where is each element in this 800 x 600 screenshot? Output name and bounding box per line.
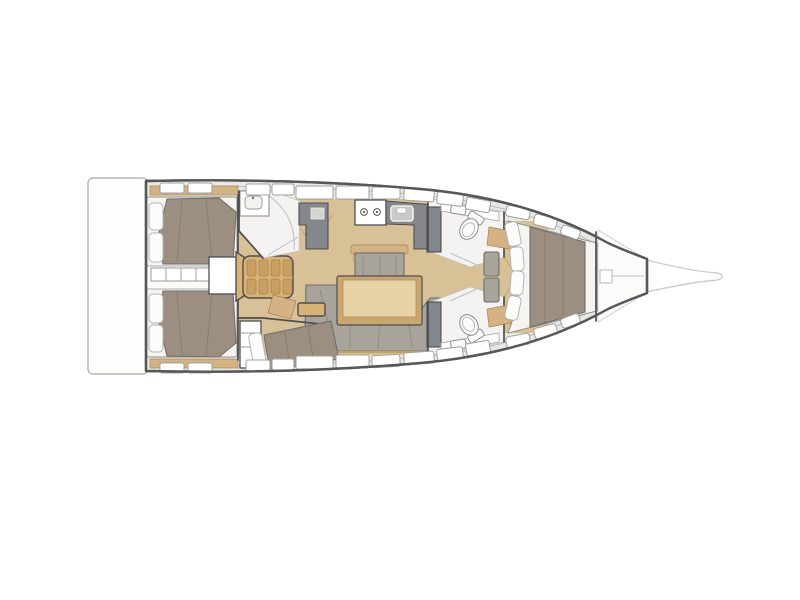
deck-hatch: [246, 360, 270, 371]
deck-hatch: [188, 183, 212, 193]
aft-port-pillow: [149, 203, 163, 230]
deck-hatch: [160, 183, 184, 193]
windlass: [600, 270, 612, 283]
faucet-dot: [252, 197, 254, 199]
aft-port-bed: [159, 198, 236, 264]
fwd-head-port-wardrobe: [427, 207, 441, 252]
passage-shelf: [151, 268, 209, 281]
aft-stbd-bed: [159, 291, 236, 357]
deck-hatch: [272, 359, 294, 370]
anchor-locker: [598, 230, 646, 322]
burner-dot: [363, 211, 365, 213]
aft-cabin-port: [147, 186, 238, 266]
fwd-seat-bottom: [484, 278, 499, 302]
fwd-pillow: [510, 271, 525, 296]
galley-left-detail: [311, 208, 324, 219]
cabinet: [296, 186, 333, 199]
swim-platform: [88, 178, 148, 374]
deck-hatch: [246, 184, 270, 195]
salon-table-top: [343, 280, 416, 317]
fwd-seat-top: [484, 252, 499, 276]
cabinet: [296, 356, 333, 369]
cabinet: [336, 186, 369, 199]
companionway-steps: [236, 252, 293, 301]
aft-port-pillow: [149, 233, 163, 262]
floor-plan-canvas: [0, 0, 800, 600]
yacht-floor-plan: [0, 0, 800, 600]
galley-faucet: [397, 208, 406, 213]
aft-stbd-pillow: [149, 325, 163, 352]
bowsprit: [646, 260, 722, 292]
mid-cabin-step: [298, 303, 325, 316]
fwd-head-stbd-wardrobe: [427, 302, 441, 347]
deck-hatch: [272, 184, 294, 195]
aft-cabin-starboard: [147, 288, 238, 368]
aft-stbd-pillow: [149, 294, 163, 323]
cabinet: [372, 187, 400, 199]
fwd-pillow: [510, 247, 525, 272]
burner-dot: [376, 211, 378, 213]
fwd-bed: [530, 227, 585, 327]
stove: [355, 200, 386, 225]
